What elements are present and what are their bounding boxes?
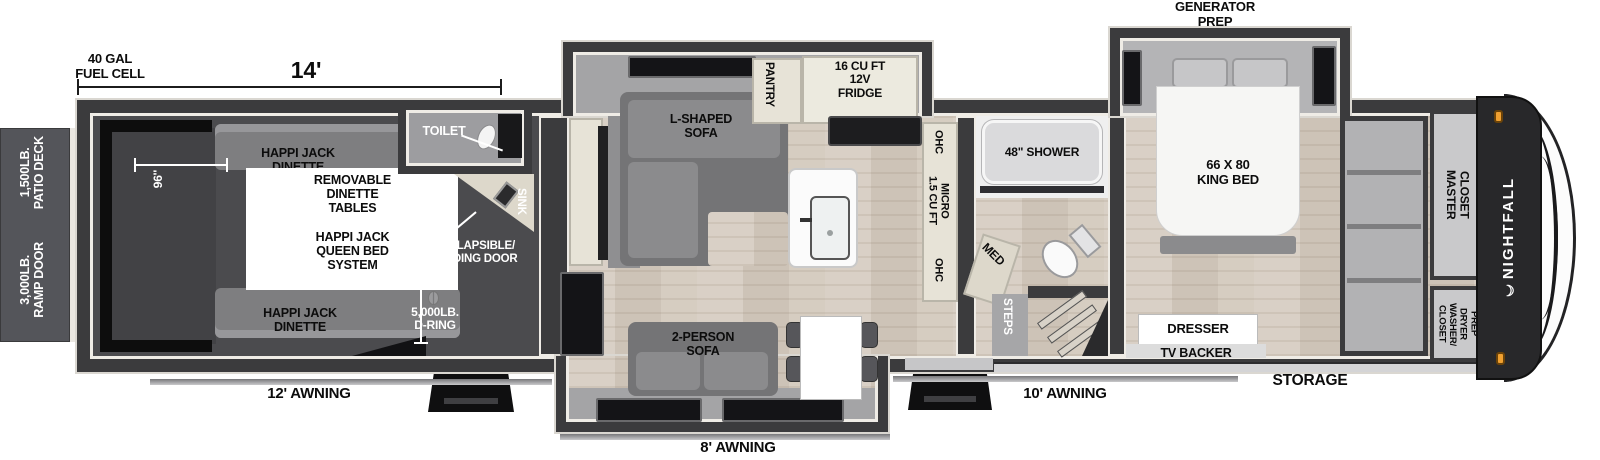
bath-bedroom-wall (1108, 116, 1126, 356)
fridge-label: 16 CU FT 12V FRIDGE (810, 60, 910, 100)
shower-label: 48" SHOWER (982, 146, 1102, 159)
living-window-left (560, 272, 604, 356)
happi-jack-bed-area (112, 128, 216, 344)
entry-door-panel (905, 358, 993, 370)
shower-door (980, 186, 1104, 193)
tv-panel (598, 126, 608, 260)
wardrobe-shelf (1347, 170, 1421, 175)
brand-name: NIGHTFALL (1500, 177, 1517, 279)
master-closet-label: MASTER CLOSET (1444, 170, 1471, 219)
patio-deck-label: 1,500LB. PATIO DECK (18, 136, 46, 209)
island-faucet (800, 218, 812, 222)
dim-75-label: 75" (378, 258, 416, 275)
bedroom-window-right (1312, 46, 1336, 106)
micro-label: 1.5 CU FT MICRO (926, 176, 951, 225)
d-ring-label: 5,000LB. D-RING (398, 306, 472, 333)
island-sink-drain (827, 230, 833, 236)
bed-frame-top (100, 120, 212, 132)
slideout-window-left (596, 398, 702, 422)
dim-14-label: 14' (274, 58, 338, 84)
l-sofa-cushion-chaise (628, 162, 698, 258)
main-entry-step (908, 368, 992, 410)
slideout-window-right (722, 398, 844, 422)
dim-96-line (134, 164, 228, 166)
floorplan-canvas: 1,500LB. PATIO DECK 3,000LB. RAMP DOOR H… (0, 0, 1600, 460)
wardrobe-shelf (1347, 224, 1421, 229)
slideout-skylight (628, 56, 756, 78)
removable-tables-label: REMOVABLE DINETTE TABLES (250, 173, 455, 215)
garage-entry-step-tread (444, 398, 498, 404)
main-entry-step-tread (924, 396, 976, 402)
dinette-bottom-label: HAPPI JACK DINETTE (230, 306, 370, 334)
dim-96-tick-left (134, 158, 136, 172)
bed-pillow-right (1232, 58, 1288, 88)
bedroom-window-left (1122, 50, 1142, 106)
dim-96-label: 96'' (152, 170, 165, 188)
awning-10-label: 10' AWNING (1000, 386, 1130, 403)
pantry-cabinet (752, 58, 802, 124)
fuel-cell-label: 40 GAL FUEL CELL (58, 52, 162, 81)
dim-14-line (78, 86, 502, 88)
marker-light-top (1494, 110, 1503, 123)
tv-backer-label: TV BACKER (1130, 346, 1262, 360)
dim-75-tick-bottom (414, 342, 428, 344)
dim-75-tick-top (414, 187, 428, 189)
washer-dryer-label: CLOSET WASHER/ DRYER PREP (1436, 303, 1479, 346)
dim-14-tick-left (77, 79, 79, 95)
ramp-door-label: 3,000LB. RAMP DOOR (18, 242, 46, 318)
bath-steps-wall (1028, 286, 1108, 298)
wardrobe-shelf (1347, 278, 1421, 283)
storage-label: STORAGE (1252, 372, 1368, 389)
island-sink (810, 196, 850, 260)
bed-frame-bottom (100, 340, 212, 352)
d-ring-icon (428, 291, 439, 305)
marker-light-bottom (1496, 352, 1505, 365)
garage-sink-label: SINK (514, 188, 527, 215)
folding-door-label: COLLAPSIBLE/ FOLDING DOOR (412, 240, 536, 266)
front-cap: ☾NIGHTFALL (1476, 96, 1542, 380)
steps-label: STEPS (1000, 298, 1013, 335)
l-sofa-floor-notch (708, 212, 788, 266)
two-person-sofa-label: 2-PERSON SOFA (640, 330, 766, 358)
pantry-label: PANTRY (762, 62, 775, 107)
storage-skirt (994, 362, 1480, 372)
dining-table (800, 316, 862, 400)
dining-chair (860, 322, 878, 348)
king-bed-label: 66 X 80 KING BED (1166, 158, 1290, 187)
ohc-top-label: OHC (932, 130, 944, 154)
awning-12-label: 12' AWNING (246, 386, 372, 403)
brand-logo: ☾NIGHTFALL (1500, 177, 1518, 299)
bedroom-wardrobe (1340, 116, 1428, 356)
l-sofa-label: L-SHAPED SOFA (638, 112, 764, 140)
bed-frame-rail (100, 120, 112, 352)
generator-prep-label: GENERATOR PREP (1162, 0, 1268, 29)
awning-8-label: 8' AWNING (678, 440, 798, 457)
dim-96-tick-right (226, 158, 228, 172)
crescent-moon-icon: ☾ (1500, 279, 1517, 299)
garage-entry-step (428, 372, 514, 412)
bed-pillow-left (1172, 58, 1228, 88)
dresser-label: DRESSER (1140, 322, 1256, 337)
awning-rail-10ft (893, 376, 1238, 382)
garage-toilet-label: TOILET (406, 124, 482, 138)
dining-chair (860, 356, 878, 382)
cooktop (828, 116, 922, 146)
kitchen-bath-wall (956, 116, 976, 356)
awning-rail-12ft (150, 379, 552, 385)
ohc-bottom-label: OHC (932, 258, 944, 282)
bed-foot-bench (1160, 236, 1296, 254)
dim-14-tick-right (500, 79, 502, 95)
